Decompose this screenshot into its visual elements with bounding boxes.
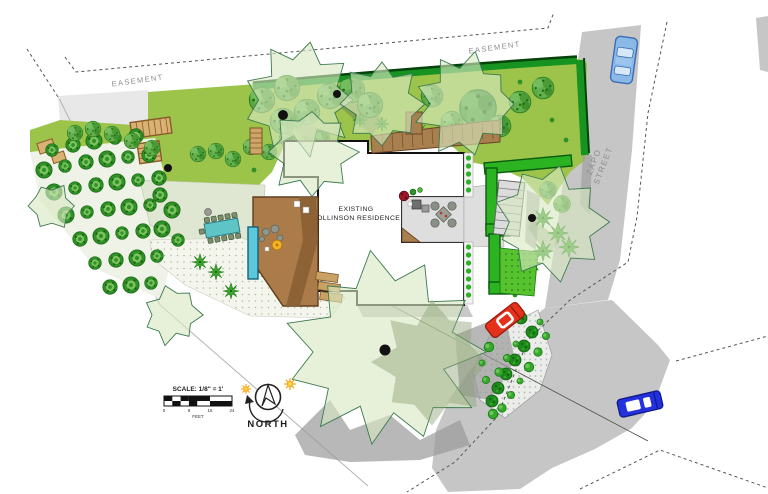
svg-text:24: 24 — [229, 408, 235, 413]
svg-text:16: 16 — [207, 408, 213, 413]
scale-unit: FEET — [192, 414, 204, 419]
residence-label-line2: COLLINSON RESIDENCE — [312, 215, 400, 222]
bed-stone — [205, 209, 212, 216]
lap-pool — [248, 227, 258, 279]
residence-label-line1: EXISTING — [339, 206, 374, 213]
north-label: NORTH — [247, 419, 288, 430]
scale-title: SCALE: 1/8" = 1' — [173, 386, 224, 393]
lawn-steps — [250, 128, 262, 154]
site-plan-page: EXISTING COLLINSON RESIDENCE — [0, 0, 768, 494]
site-plan-drawing: EXISTING COLLINSON RESIDENCE — [0, 0, 768, 494]
